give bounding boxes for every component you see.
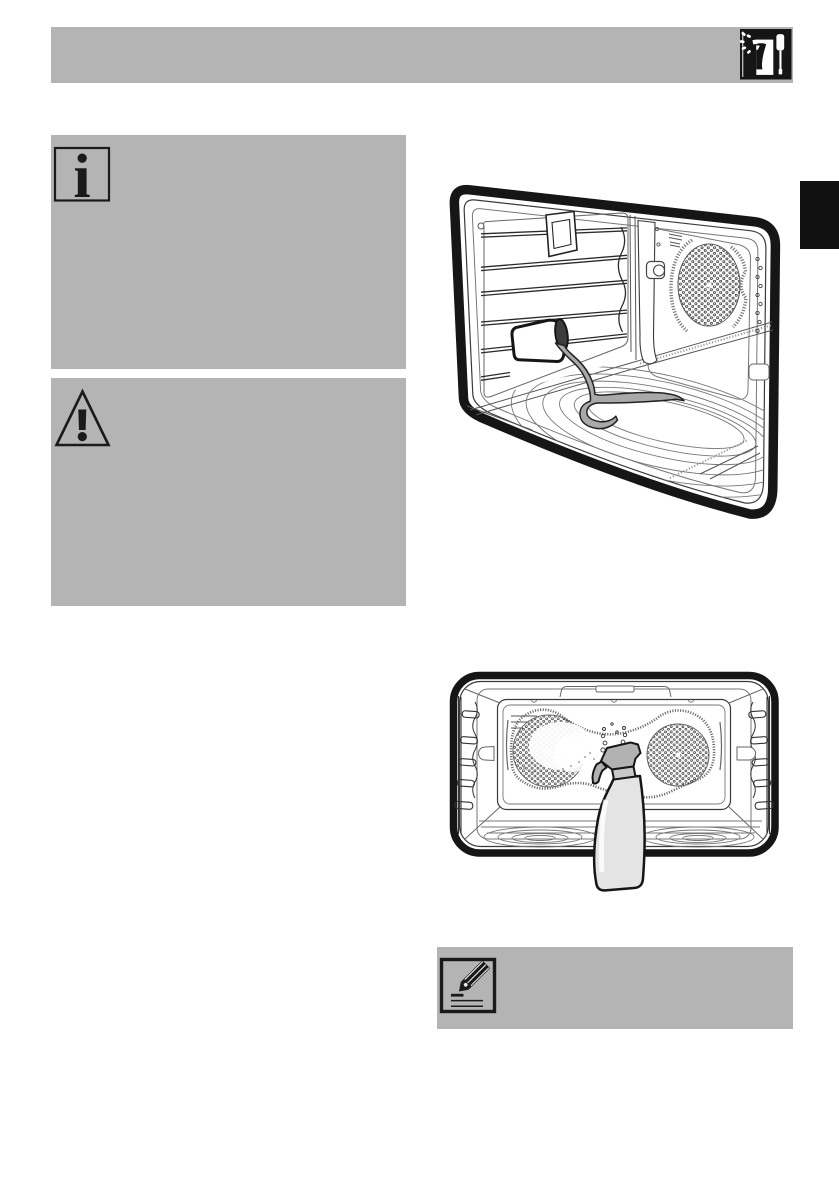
svg-text:i: i — [73, 143, 90, 207]
